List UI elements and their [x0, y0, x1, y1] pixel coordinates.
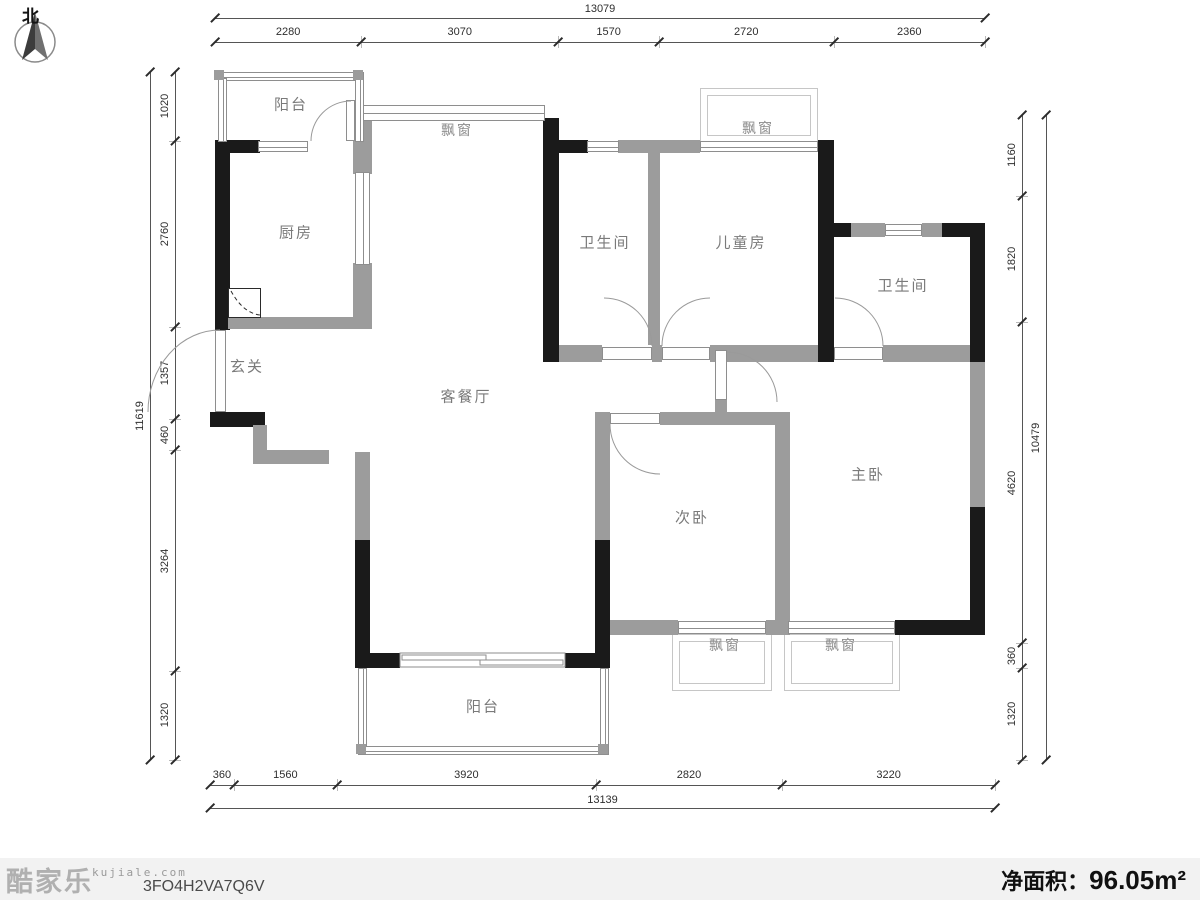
frame-corner [598, 744, 608, 754]
balcony-door-leaf [346, 100, 355, 141]
wall-segment [942, 223, 985, 237]
dim-label: 2760 [159, 222, 171, 246]
dim-overall-label: 11619 [134, 401, 146, 431]
dim-label: 3220 [876, 769, 900, 781]
bathroom2-window [885, 224, 922, 236]
wall-segment [228, 317, 372, 329]
wall-segment [660, 412, 790, 425]
bathroom1-door-leaf [602, 347, 652, 360]
wall-segment [618, 140, 655, 153]
wall-segment [355, 540, 370, 668]
wall-segment [970, 237, 985, 362]
balcony-bottom-frame [358, 668, 367, 752]
living-bay-window [363, 105, 545, 121]
bathroom2-door-leaf [834, 347, 883, 360]
room-label-second-bedroom: 次卧 [675, 507, 709, 528]
wall-segment [648, 153, 660, 345]
kids-door-leaf [662, 347, 710, 360]
wall-segment [655, 140, 700, 153]
dim-label: 1160 [1006, 143, 1018, 167]
wall-segment [558, 140, 588, 153]
dim-label: 3070 [448, 26, 472, 38]
dim-line [215, 18, 985, 19]
wall-segment [652, 345, 662, 362]
wall-segment [818, 345, 834, 362]
room-label-bathroom-2: 卫生间 [877, 275, 928, 296]
dim-label: 3264 [159, 548, 171, 572]
dim-label: 3920 [454, 769, 478, 781]
dim-line [215, 42, 985, 43]
kitchen-flue-fixture [228, 288, 261, 318]
room-label-bay-second: 飘窗 [709, 635, 741, 655]
second-bedroom-bay-window [678, 621, 766, 634]
bathroom1-window [587, 141, 619, 152]
dim-label: 1820 [1006, 247, 1018, 271]
dim-line [210, 785, 995, 786]
dim-label: 4620 [1006, 470, 1018, 494]
entry-door-leaf [215, 330, 226, 412]
net-area-label: 净面积： [1001, 869, 1089, 894]
dim-label: 360 [213, 769, 231, 781]
wall-segment [970, 362, 985, 509]
dim-label: 2820 [677, 769, 701, 781]
wall-segment [970, 507, 985, 635]
wall-segment [355, 653, 400, 668]
wall-segment [818, 140, 834, 362]
kids-bay-window [700, 141, 818, 152]
dim-label: 1570 [596, 26, 620, 38]
plan-code: 3FO4H2VA7Q6V [143, 878, 265, 896]
room-label-bay-kids: 飘窗 [742, 118, 774, 138]
net-area-value: 96.05m² [1089, 865, 1186, 895]
frame-corner [214, 70, 224, 80]
dim-line [210, 808, 995, 809]
frame-corner [356, 744, 366, 754]
dim-line [150, 72, 151, 760]
room-label-bathroom-1: 卫生间 [579, 232, 630, 253]
dim-label: 360 [1006, 647, 1018, 665]
wall-segment [253, 450, 329, 464]
wall-segment [565, 653, 610, 668]
room-label-bay-living: 飘窗 [441, 120, 473, 140]
net-area: 净面积：96.05m² [1001, 864, 1186, 896]
room-label-entry: 玄关 [230, 356, 264, 377]
room-label-kitchen: 厨房 [279, 222, 313, 243]
wall-segment [543, 118, 559, 362]
wall-segment [595, 412, 610, 542]
room-label-kids-room: 儿童房 [715, 232, 766, 253]
dim-line [1022, 115, 1023, 760]
dim-label: 2720 [734, 26, 758, 38]
wall-segment [895, 620, 985, 635]
kujiale-logo: 酷家乐 [6, 860, 93, 899]
corridor-door-leaf [715, 350, 727, 400]
wall-segment [766, 620, 788, 635]
balcony-top-frame [218, 78, 227, 142]
dim-label: 2280 [276, 26, 300, 38]
dim-line [1046, 115, 1047, 760]
kitchen-side-window [355, 172, 370, 265]
wall-segment [922, 223, 942, 237]
wall-segment [355, 452, 370, 544]
wall-segment [559, 345, 602, 362]
dim-label: 1357 [159, 361, 171, 385]
floor-plan-sheet: 北 阳台 厨房 飘窗 卫生间 儿童房 [0, 0, 1200, 860]
wall-segment [595, 540, 610, 668]
footer-bar: 酷家乐 kujiale.com 3FO4H2VA7Q6V 净面积：96.05m² [0, 858, 1200, 900]
dim-overall-label: 13139 [587, 794, 618, 806]
wall-segment [970, 345, 985, 362]
wall-segment [883, 345, 970, 362]
wall-segment [851, 223, 885, 237]
compass: 北 [8, 2, 68, 66]
balcony-bottom-frame [600, 668, 609, 752]
dim-label: 1320 [159, 703, 171, 727]
room-label-master-bedroom: 主卧 [851, 464, 885, 485]
dim-label: 2360 [897, 26, 921, 38]
master-bedroom-bay-window [788, 621, 895, 634]
sliding-door [400, 653, 565, 667]
compass-north-label: 北 [22, 2, 39, 27]
wall-segment [610, 620, 678, 635]
wall-segment [775, 414, 790, 635]
dim-label: 1560 [273, 769, 297, 781]
balcony-top-frame [218, 72, 364, 81]
dim-overall-label: 13079 [585, 3, 616, 15]
dim-label: 1320 [1006, 702, 1018, 726]
balcony-bottom-frame [358, 746, 609, 755]
dim-label: 460 [159, 425, 171, 443]
room-label-balcony-bottom: 阳台 [466, 696, 500, 717]
dim-label: 1020 [159, 94, 171, 118]
kitchen-top-window [258, 141, 308, 152]
room-label-living-dining: 客餐厅 [440, 386, 491, 407]
second-bedroom-door-leaf [610, 413, 660, 424]
balcony-top-frame [355, 78, 364, 142]
frame-corner [353, 70, 363, 80]
dim-overall-label: 10479 [1030, 422, 1042, 453]
room-label-bay-master: 飘窗 [825, 635, 857, 655]
room-label-balcony-top: 阳台 [274, 94, 308, 115]
wall-segment [834, 223, 851, 237]
